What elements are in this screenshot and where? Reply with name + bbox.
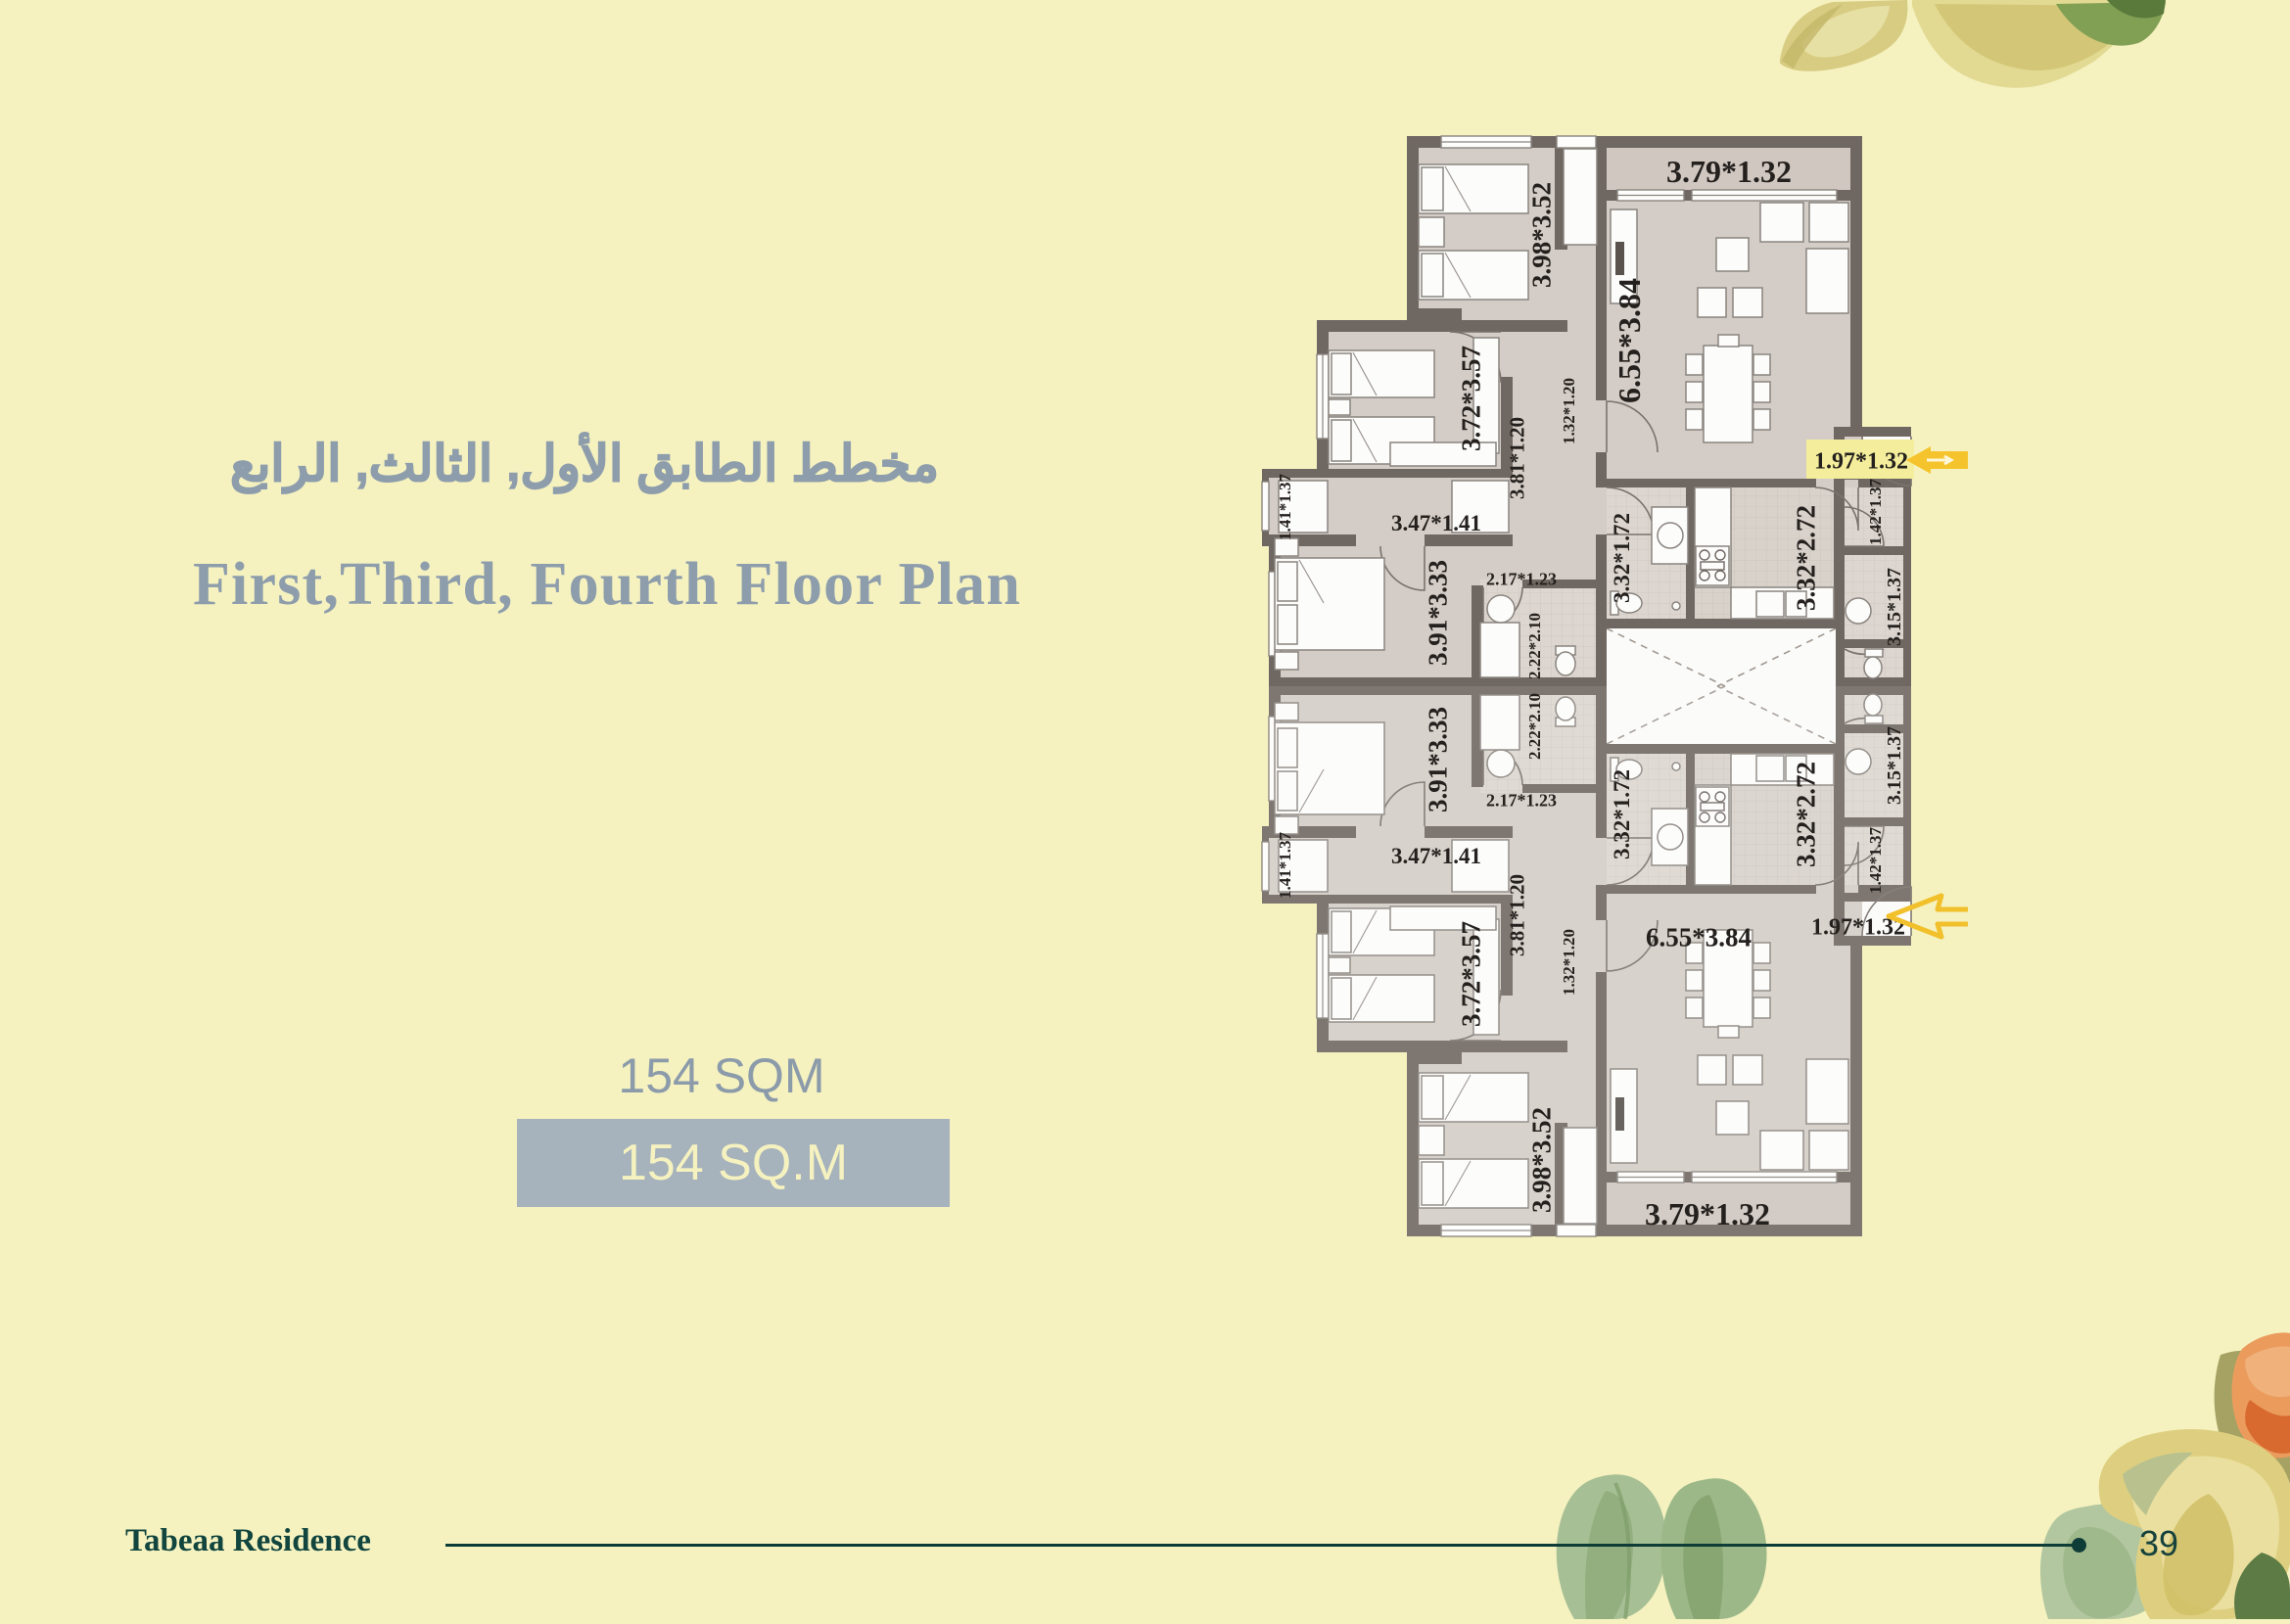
svg-text:1.41*1.37: 1.41*1.37 — [1276, 832, 1294, 900]
svg-text:3.32*2.72: 3.32*2.72 — [1791, 505, 1820, 611]
svg-text:1.41*1.37: 1.41*1.37 — [1276, 474, 1294, 541]
svg-text:3.47*1.41: 3.47*1.41 — [1391, 844, 1481, 868]
svg-text:3.91*3.33: 3.91*3.33 — [1423, 707, 1452, 812]
svg-text:3.79*1.32: 3.79*1.32 — [1645, 1196, 1770, 1231]
svg-text:3.32*1.72: 3.32*1.72 — [1610, 769, 1634, 859]
svg-text:1.42*1.37: 1.42*1.37 — [1866, 827, 1885, 895]
svg-text:1.32*1.20: 1.32*1.20 — [1560, 929, 1578, 996]
svg-text:1.32*1.20: 1.32*1.20 — [1560, 378, 1578, 444]
svg-text:3.81*1.20: 3.81*1.20 — [1505, 874, 1528, 956]
svg-text:2.17*1.23: 2.17*1.23 — [1486, 569, 1557, 588]
svg-text:3.72*3.57: 3.72*3.57 — [1456, 346, 1485, 451]
svg-text:3.72*3.57: 3.72*3.57 — [1456, 921, 1485, 1027]
svg-text:2.22*2.10: 2.22*2.10 — [1525, 693, 1544, 760]
svg-text:3.79*1.32: 3.79*1.32 — [1666, 154, 1792, 189]
svg-text:3.81*1.20: 3.81*1.20 — [1505, 417, 1528, 499]
svg-text:3.15*1.37: 3.15*1.37 — [1884, 726, 1905, 805]
svg-text:1.97*1.32: 1.97*1.32 — [1814, 448, 1908, 474]
svg-text:1.42*1.37: 1.42*1.37 — [1866, 479, 1885, 546]
svg-text:2.17*1.23: 2.17*1.23 — [1486, 790, 1557, 810]
svg-text:2.22*2.10: 2.22*2.10 — [1525, 613, 1544, 679]
svg-text:3.98*3.52: 3.98*3.52 — [1526, 182, 1556, 288]
svg-text:3.98*3.52: 3.98*3.52 — [1526, 1107, 1556, 1213]
svg-text:3.91*3.33: 3.91*3.33 — [1423, 560, 1452, 666]
svg-text:3.32*1.72: 3.32*1.72 — [1610, 513, 1634, 603]
svg-text:3.32*2.72: 3.32*2.72 — [1791, 762, 1820, 867]
svg-text:3.47*1.41: 3.47*1.41 — [1391, 511, 1481, 535]
svg-text:3.15*1.37: 3.15*1.37 — [1884, 568, 1905, 646]
svg-text:6.55*3.84: 6.55*3.84 — [1646, 922, 1752, 951]
svg-text:6.55*3.84: 6.55*3.84 — [1612, 278, 1647, 403]
